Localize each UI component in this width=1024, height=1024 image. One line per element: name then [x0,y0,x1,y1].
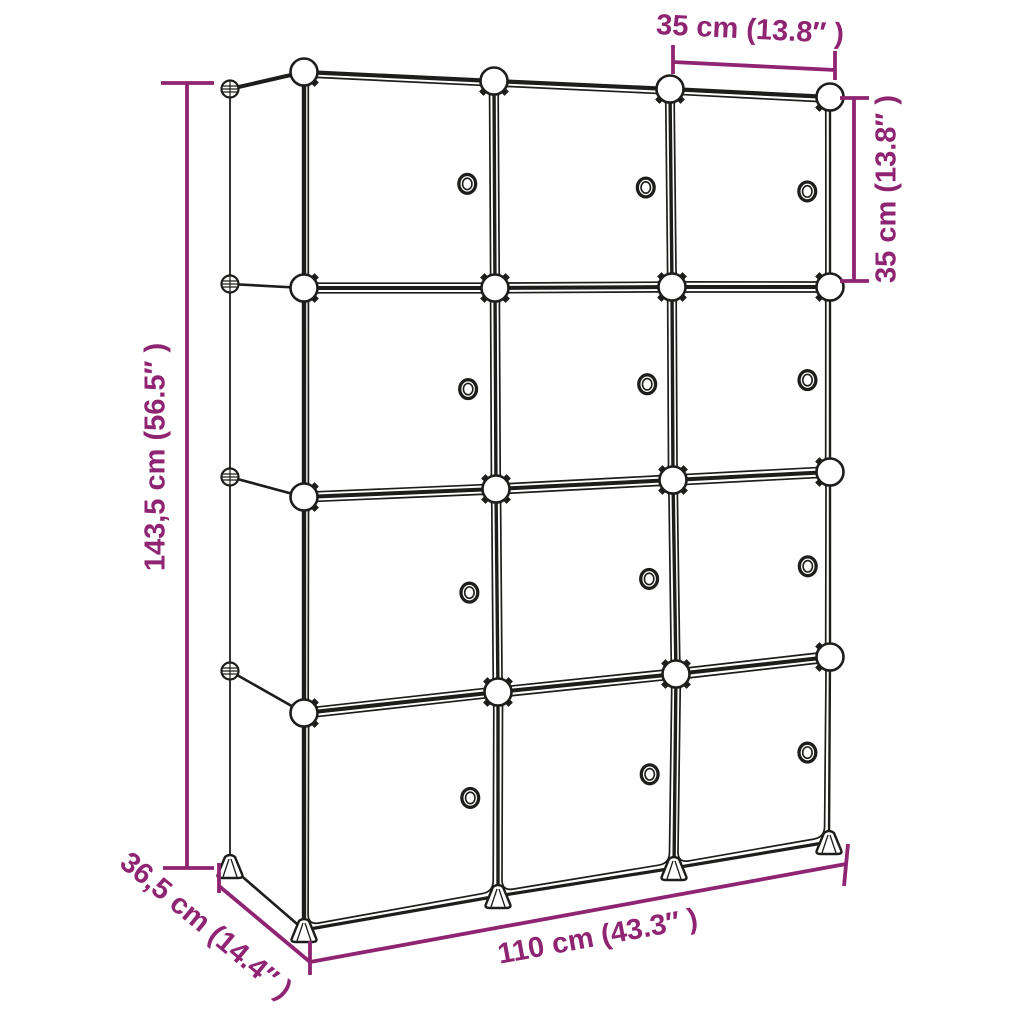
dimension-line [673,45,835,80]
door-panel [308,698,494,923]
connector-ball [657,76,684,103]
door-knob [459,174,476,193]
door-knob [461,583,478,602]
door-knob [799,557,816,576]
connector-ball [481,68,508,95]
dimension-label: 143,5 cm (56.5″ ) [140,343,172,571]
connector-ball [660,467,687,494]
connector-ball [483,476,510,503]
connector-ball [291,275,318,302]
connector-ball [663,661,690,688]
door-knob [641,765,658,784]
door-knob [462,789,479,808]
cabinet-drawing [218,59,844,943]
diagram-canvas: 35 cm (13.8″ ) 35 cm (13.8″ ) 143,5 cm (… [0,0,1024,1024]
connector-ball [482,275,509,302]
connector-ball [817,644,844,671]
door-knob [639,375,656,394]
door-knob [799,182,816,201]
dimension-cube-width-top: 35 cm (13.8″ ) [655,9,844,80]
door-knob [799,743,816,762]
connector-ball [291,700,318,727]
dimension-cube-height-right: 35 cm (13.8″ ) [840,95,903,283]
connector-ball [817,459,844,486]
door-knob [637,178,654,197]
connector-ball [817,274,844,301]
connector-ball [291,59,318,86]
dimension-label: 35 cm (13.8″ ) [871,95,903,283]
dimension-label: 35 cm (13.8″ ) [655,9,844,50]
dimension-line [840,98,869,281]
connector-ball [659,274,686,301]
shelf-line [304,287,830,288]
connector-ball [485,679,512,706]
door-knob [641,570,658,589]
connector-ball [291,484,318,511]
door-panel [502,680,672,889]
connector-ball [817,84,844,111]
cube-storage-dimension-diagram: 35 cm (13.8″ ) 35 cm (13.8″ ) 143,5 cm (… [0,0,1024,1024]
door-knob [799,371,816,390]
dimension-label: 110 cm (43.3″ ) [495,903,700,971]
door-knob [460,380,477,399]
dimension-total-height-left: 143,5 cm (56.5″ ) [140,83,214,868]
